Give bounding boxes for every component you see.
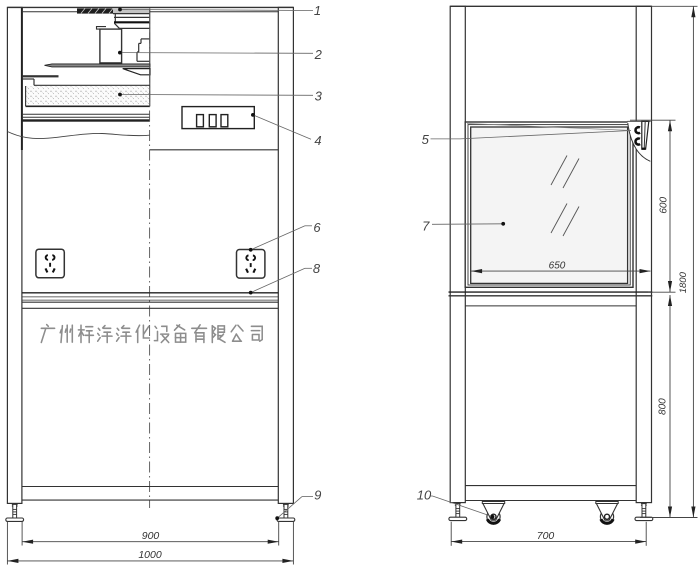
svg-text:10: 10 bbox=[417, 487, 432, 502]
svg-text:700: 700 bbox=[537, 530, 555, 542]
svg-text:7: 7 bbox=[422, 218, 430, 233]
svg-text:600: 600 bbox=[658, 197, 669, 214]
svg-text:1800: 1800 bbox=[678, 271, 689, 293]
svg-text:800: 800 bbox=[657, 398, 668, 415]
svg-text:4: 4 bbox=[314, 133, 321, 148]
svg-text:8: 8 bbox=[313, 261, 321, 276]
svg-text:5: 5 bbox=[422, 132, 430, 147]
svg-text:2: 2 bbox=[314, 47, 323, 62]
svg-text:3: 3 bbox=[315, 89, 323, 104]
svg-text:1000: 1000 bbox=[138, 549, 162, 561]
svg-text:650: 650 bbox=[549, 261, 566, 272]
svg-text:900: 900 bbox=[142, 530, 160, 542]
svg-text:1: 1 bbox=[314, 3, 321, 18]
svg-text:9: 9 bbox=[314, 487, 321, 502]
svg-text:6: 6 bbox=[313, 220, 321, 235]
